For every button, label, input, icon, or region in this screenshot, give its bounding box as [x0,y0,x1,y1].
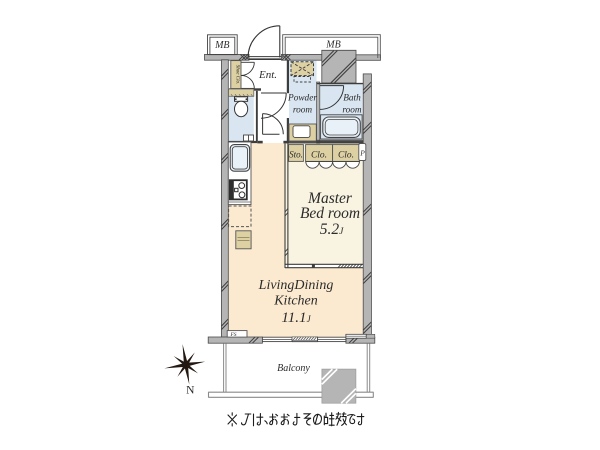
svg-text:N: N [186,385,195,397]
svg-text:FS: FS [229,332,236,338]
svg-text:Powder: Powder [287,94,317,104]
svg-text:LivingDining: LivingDining [258,278,334,293]
svg-text:Sto.: Sto. [289,149,303,159]
svg-text:Kitchen: Kitchen [273,293,318,308]
svg-text:Balcony: Balcony [277,363,310,374]
svg-text:P: P [359,149,365,158]
svg-text:Bath: Bath [343,94,361,104]
svg-text:room: room [293,106,313,116]
svg-text:room: room [342,106,362,116]
svg-text:Shoe Clo.: Shoe Clo. [235,65,240,84]
svg-text:Clo.: Clo. [338,150,354,160]
svg-text:Bed room: Bed room [300,205,360,222]
svg-text:Clo.: Clo. [311,150,327,160]
svg-text:Ent.: Ent. [258,69,277,81]
svg-text:MB: MB [325,40,340,51]
svg-text:MB: MB [214,40,229,51]
